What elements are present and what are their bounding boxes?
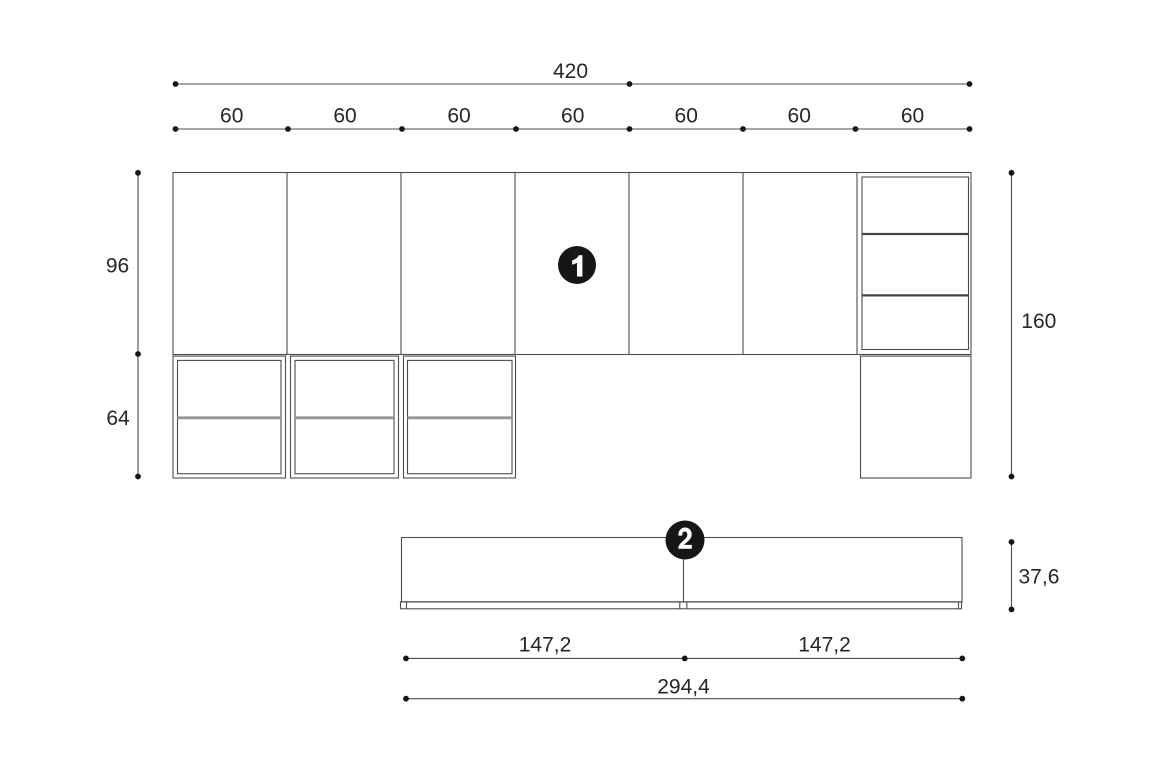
- svg-text:60: 60: [675, 104, 698, 127]
- svg-text:60: 60: [220, 104, 243, 127]
- svg-text:60: 60: [901, 104, 924, 127]
- svg-text:294,4: 294,4: [657, 676, 710, 699]
- svg-text:96: 96: [106, 254, 129, 277]
- svg-text:60: 60: [788, 104, 811, 127]
- svg-text:60: 60: [561, 104, 584, 127]
- svg-text:60: 60: [333, 104, 356, 127]
- svg-text:64: 64: [106, 407, 130, 430]
- svg-text:420: 420: [553, 60, 588, 83]
- svg-text:147,2: 147,2: [798, 634, 851, 657]
- svg-text:60: 60: [447, 104, 470, 127]
- svg-text:160: 160: [1021, 310, 1056, 333]
- svg-text:147,2: 147,2: [519, 634, 572, 657]
- svg-text:37,6: 37,6: [1019, 566, 1060, 589]
